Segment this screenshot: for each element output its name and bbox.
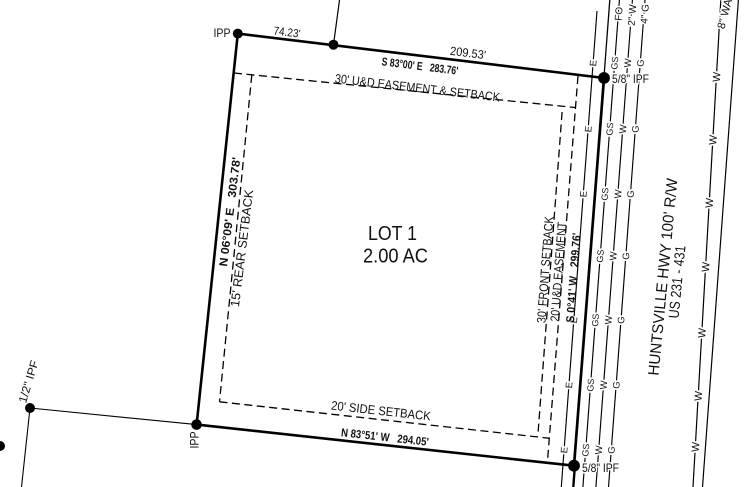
svg-text:5/8" IPF: 5/8" IPF (582, 461, 619, 475)
svg-text:G: G (616, 316, 628, 324)
svg-text:E: E (578, 191, 589, 198)
svg-text:W: W (693, 391, 706, 402)
svg-text:GS: GS (580, 443, 591, 457)
svg-text:G: G (621, 252, 633, 260)
svg-text:E: E (564, 382, 575, 389)
svg-text:W: W (707, 135, 720, 146)
svg-text:W: W (594, 445, 606, 455)
svg-text:GS: GS (585, 378, 596, 392)
svg-text:W: W (711, 72, 724, 83)
svg-text:W: W (623, 58, 635, 68)
svg-text:GS: GS (590, 313, 601, 327)
svg-text:G: G (606, 446, 618, 454)
svg-text:FO: FO (614, 6, 626, 21)
svg-text:G: G (635, 59, 647, 67)
svg-text:W: W (618, 124, 630, 134)
svg-text:4" G: 4" G (639, 4, 651, 25)
svg-text:W: W (599, 380, 611, 390)
svg-text:W: W (690, 442, 703, 453)
svg-text:GS: GS (595, 249, 606, 263)
svg-text:GS: GS (604, 122, 615, 136)
svg-text:W: W (603, 315, 615, 325)
svg-text:2" W: 2" W (627, 4, 640, 27)
svg-text:W: W (700, 262, 713, 273)
svg-text:E: E (588, 60, 599, 67)
svg-text:W: W (613, 189, 625, 199)
svg-text:E: E (559, 447, 570, 454)
svg-text:E: E (583, 126, 594, 133)
svg-text:IPP: IPP (214, 28, 231, 40)
svg-text:2.00 AC: 2.00 AC (363, 245, 428, 268)
svg-text:G: G (626, 190, 638, 198)
svg-text:LOT 1: LOT 1 (368, 222, 417, 245)
svg-text:G: G (630, 125, 642, 133)
svg-text:GS: GS (609, 56, 620, 70)
svg-text:W: W (704, 198, 717, 209)
svg-text:W: W (696, 328, 709, 339)
svg-text:G: G (611, 381, 623, 389)
svg-text:5/8" IPF: 5/8" IPF (612, 72, 649, 86)
svg-text:IPP: IPP (190, 431, 202, 448)
svg-text:GS: GS (600, 187, 611, 201)
svg-text:W: W (608, 251, 620, 261)
